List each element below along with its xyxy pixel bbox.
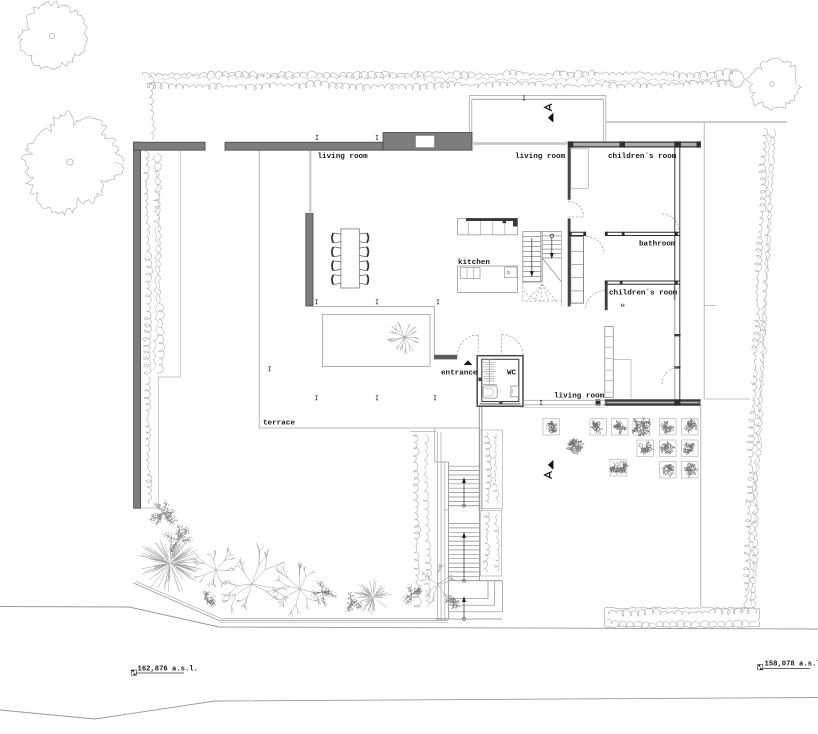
svg-text:158,078 a.s.l.: 158,078 a.s.l. xyxy=(765,661,818,669)
svg-text:WC: WC xyxy=(507,370,517,378)
svg-text:living room: living room xyxy=(515,153,566,161)
svg-text:162,876 a.s.l.: 162,876 a.s.l. xyxy=(138,666,198,674)
svg-text:terrace: terrace xyxy=(263,420,295,428)
svg-text:bathroom: bathroom xyxy=(639,241,676,249)
svg-text:kitchen: kitchen xyxy=(458,259,490,267)
svg-text:living room: living room xyxy=(318,153,369,161)
svg-text:entrance: entrance xyxy=(441,370,478,378)
svg-text:children´s room: children´s room xyxy=(608,153,677,161)
svg-text:children´s room: children´s room xyxy=(609,290,678,298)
svg-text:living room: living room xyxy=(554,393,605,401)
